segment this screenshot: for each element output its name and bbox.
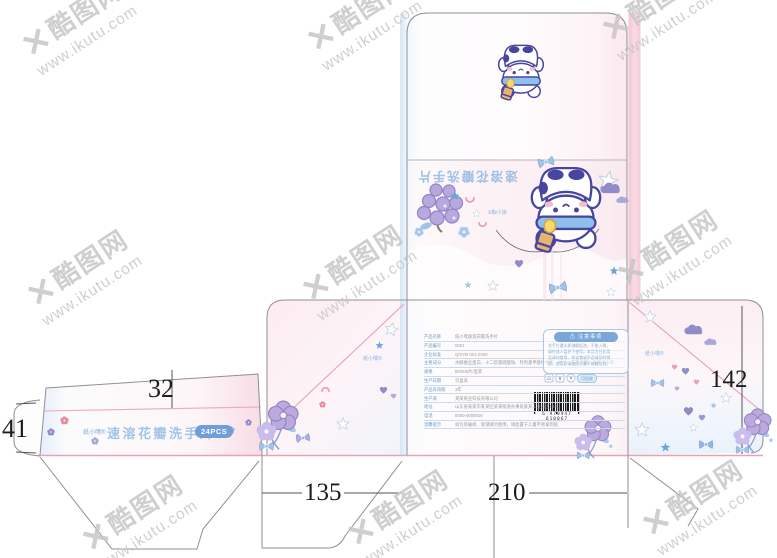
right-panel-brand: 纸小嘿® xyxy=(645,350,664,357)
notice-line: 医，使用后请放回儿童不易触及处。 xyxy=(544,361,628,367)
back-panel-brand: 纸小嘿® xyxy=(488,208,507,215)
table-row: 生产商某某纸业科技有限公司 xyxy=(424,394,625,403)
left-panel-brand: 纸小嘿® xyxy=(363,355,382,362)
dieline-canvas: ✕酷图网 www.ikutu.com ✕酷图网 www.ikutu.com ✕酷… xyxy=(0,0,777,558)
table-row: 地址山东省某某市某某区某某街道办事处某某工业园区18号 xyxy=(424,403,625,412)
barcode-digits: 6 970947 610067 xyxy=(532,412,582,422)
bear-illustration-top-flap xyxy=(499,45,544,100)
dimension-label-135: 135 xyxy=(304,479,342,507)
table-row: 电话0000-0000000 xyxy=(424,412,625,421)
table-row: 温馨提示如包装破损、受潮请勿使用，请放置于儿童不易拿到处 xyxy=(424,421,625,430)
cut-lines xyxy=(14,13,763,558)
count-badge: 24PCS xyxy=(195,425,233,438)
brand-logo: 纸小嘿® xyxy=(83,427,105,436)
notice-box: ⚠ 注意事项 洗手片遇水即溶解起泡，不能入眼， 请在成人监护下使用，本品为日化用… xyxy=(543,329,629,374)
back-panel-title: 速溶花瓣洗手片 xyxy=(412,168,522,187)
eco-badge: 可回收 xyxy=(577,374,597,383)
dimension-label-41: 41 xyxy=(2,414,28,444)
panel-fills xyxy=(14,13,763,456)
bear-illustration-back-panel xyxy=(532,168,600,253)
dimension-label-142: 142 xyxy=(710,366,748,394)
table-row: 产品有效期3年 xyxy=(424,386,625,395)
notice-title: ⚠ 注意事项 xyxy=(554,332,618,342)
dieline-drawing xyxy=(0,0,777,558)
dimension-label-32: 32 xyxy=(148,374,174,404)
dimension-label-210: 210 xyxy=(488,479,526,507)
